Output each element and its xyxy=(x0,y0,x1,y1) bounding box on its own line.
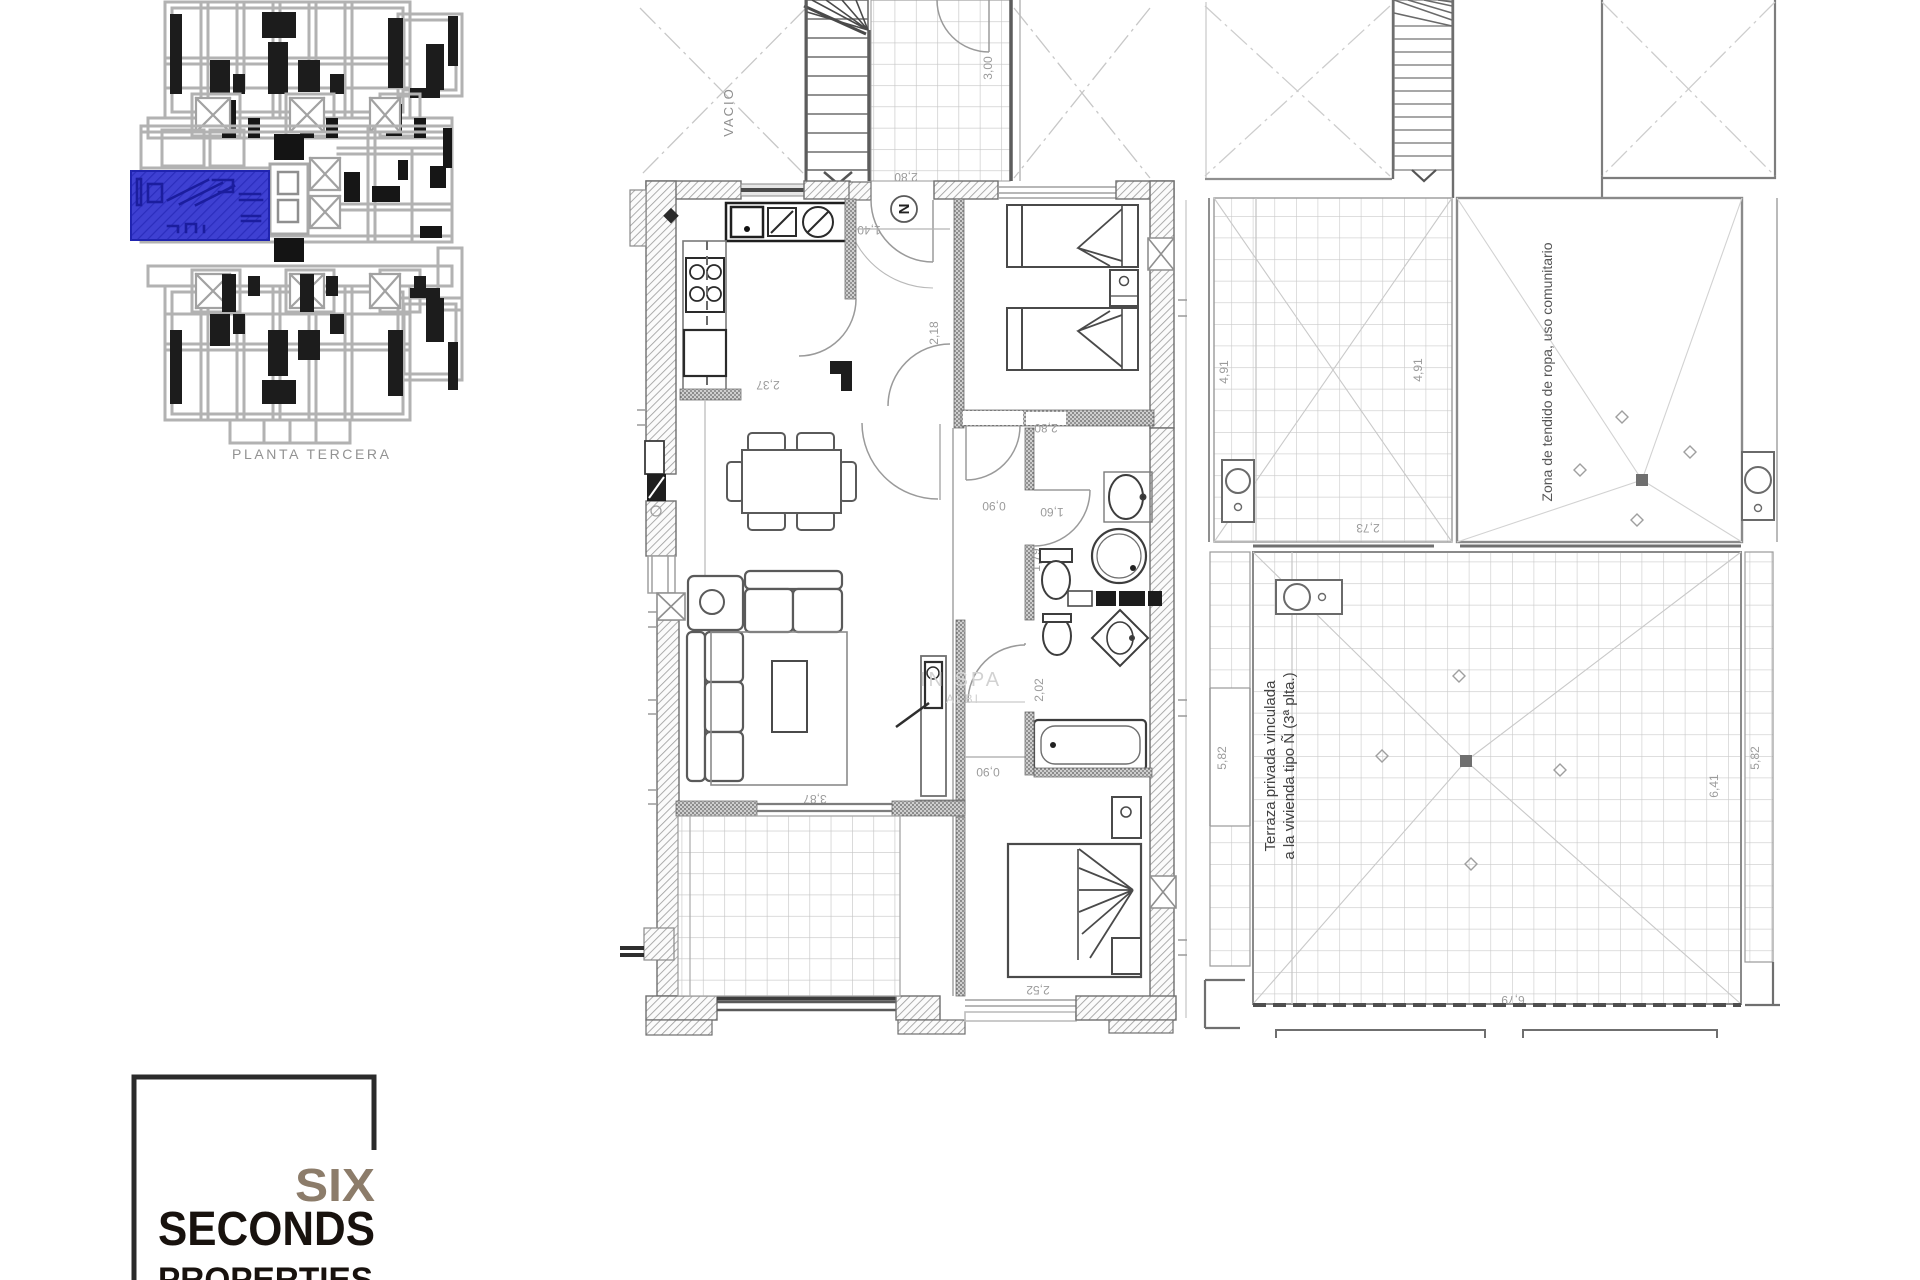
svg-text:a la vivienda tipo Ñ (3ª plta.: a la vivienda tipo Ñ (3ª plta.) xyxy=(1281,672,1298,859)
svg-text:4,91: 4,91 xyxy=(1217,360,1231,384)
svg-text:SECONDS: SECONDS xyxy=(158,1203,375,1256)
svg-text:N: N xyxy=(896,204,913,215)
svg-text:PROPERTIES: PROPERTIES xyxy=(158,1261,373,1280)
svg-text:Zona de tendido de ropa, uso c: Zona de tendido de ropa, uso comunitario xyxy=(1539,242,1555,501)
svg-text:2,80: 2,80 xyxy=(1034,421,1058,435)
svg-text:ALBI: ALBI xyxy=(946,692,980,706)
svg-text:2,52: 2,52 xyxy=(1026,983,1050,997)
svg-text:1,40: 1,40 xyxy=(857,223,881,237)
svg-text:PLANTA TERCERA: PLANTA TERCERA xyxy=(232,446,392,462)
svg-text:4,91: 4,91 xyxy=(1411,358,1425,382)
svg-text:5,82: 5,82 xyxy=(1215,746,1229,770)
svg-text:0,90: 0,90 xyxy=(982,499,1006,513)
svg-text:2,37: 2,37 xyxy=(756,378,780,392)
svg-text:VACIO: VACIO xyxy=(721,87,736,137)
svg-text:2,02: 2,02 xyxy=(1032,678,1046,702)
svg-text:IN SPA: IN SPA xyxy=(920,669,1002,691)
svg-text:5,82: 5,82 xyxy=(1748,746,1762,770)
svg-text:0,90: 0,90 xyxy=(976,765,1000,779)
svg-text:2,18: 2,18 xyxy=(927,321,941,345)
svg-text:2,80: 2,80 xyxy=(894,170,918,184)
svg-text:Terraza privada vinculada: Terraza privada vinculada xyxy=(1262,680,1279,852)
svg-text:1,60: 1,60 xyxy=(1040,505,1064,519)
svg-text:2,73: 2,73 xyxy=(1356,521,1380,535)
svg-text:6,41: 6,41 xyxy=(1707,774,1721,798)
svg-text:3,00: 3,00 xyxy=(981,56,995,80)
